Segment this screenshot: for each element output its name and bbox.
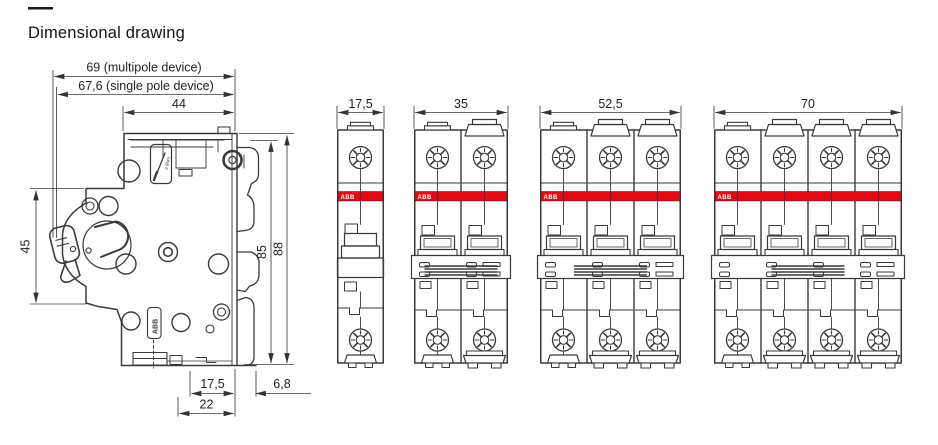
bottom-clamp — [861, 351, 897, 356]
top-clamp — [725, 126, 751, 130]
dim-85-label: 85 — [255, 245, 269, 259]
torque-label: 2.8Nm — [164, 156, 172, 170]
toggle-pivot-boss — [83, 221, 131, 269]
screw-terminal-icon — [868, 329, 890, 351]
screw-terminal-icon — [868, 147, 890, 169]
screw-terminal-icon — [600, 147, 622, 169]
screw-terminal-icon — [600, 329, 622, 351]
top-clamp — [812, 125, 851, 137]
screw-terminal-icon — [774, 147, 796, 169]
dim-45-label: 45 — [19, 240, 33, 254]
width-dimension-label: 35 — [454, 97, 468, 111]
screw-terminal-icon — [821, 329, 843, 351]
side-outline-front — [63, 134, 125, 366]
screw-terminal-icon — [427, 329, 449, 351]
dim-6-8-label: 6,8 — [273, 377, 290, 391]
dim-17-5-label: 17,5 — [200, 377, 224, 391]
din-clip-lower — [237, 298, 254, 366]
top-clamp — [425, 126, 451, 130]
bottom-clamp — [814, 351, 850, 356]
bottom-clamp — [767, 351, 803, 356]
abb-logo-text: ABB — [341, 195, 355, 201]
screw-terminal-icon — [553, 147, 575, 169]
top-clamp — [765, 125, 804, 137]
front-view-two-pole: 35ABB — [412, 97, 511, 368]
bottom-clamp — [548, 355, 580, 363]
din-screw-boss — [224, 151, 242, 169]
torque-label-box: 2.8Nm — [151, 145, 172, 184]
top-clamp — [465, 125, 504, 137]
screw-terminal-icon — [774, 329, 796, 351]
bottom-clamp — [345, 355, 377, 363]
abb-logo-text: ABB — [544, 195, 558, 201]
screw-terminal-icon — [350, 147, 372, 169]
bottom-clamp — [467, 351, 503, 356]
bottom-clamp — [640, 351, 676, 356]
side-view: 2.8Nm ABB — [48, 127, 259, 368]
screw-terminal-icon — [727, 147, 749, 169]
side-top-tab — [218, 127, 230, 134]
width-dimension-label: 70 — [801, 97, 815, 111]
front-view-four-pole: 70ABB — [712, 97, 905, 368]
screw-terminal-icon — [647, 329, 669, 351]
width-dimension-label: 17,5 — [348, 97, 372, 111]
abb-red-band — [715, 192, 901, 202]
top-clamp — [591, 125, 630, 137]
screw-terminal-icon — [821, 147, 843, 169]
top-clamp — [638, 125, 677, 137]
toggle-foot — [61, 261, 81, 282]
screw-terminal-icon — [553, 329, 575, 351]
screw-terminal-icon — [474, 329, 496, 351]
top-clamp — [859, 125, 898, 137]
dim-88-label: 88 — [272, 242, 286, 256]
screw-terminal-icon — [647, 147, 669, 169]
top-clamp — [551, 126, 577, 130]
bottom-clamp — [593, 351, 629, 356]
front-view-three-pole: 52,5ABB — [538, 97, 684, 368]
front-views: 17,5ABB35ABB52,5ABB70ABB — [337, 97, 905, 368]
width-dimension-label: 52,5 — [598, 97, 622, 111]
bottom-clamp — [722, 355, 754, 363]
dim-67-6-label: 67,6 (single pole device) — [78, 79, 214, 93]
screw-terminal-icon — [427, 147, 449, 169]
side-abb-label: ABB — [148, 308, 162, 339]
front-view-single-pole: 17,5ABB — [337, 97, 384, 368]
dim-44-label: 44 — [172, 97, 186, 111]
dimensional-drawing-canvas: 2.8Nm ABB — [0, 0, 938, 445]
abb-logo-text: ABB — [418, 195, 432, 201]
screw-terminal-icon — [474, 147, 496, 169]
top-clamp — [348, 126, 374, 130]
bottom-clamp — [422, 355, 454, 363]
screw-terminal-icon — [727, 329, 749, 351]
dim-22-label: 22 — [200, 398, 214, 412]
dim-69-label: 69 (multipole device) — [86, 61, 201, 75]
abb-logo-text: ABB — [718, 195, 732, 201]
abb-logo-text: ABB — [153, 319, 160, 334]
screw-terminal-icon — [350, 329, 372, 351]
